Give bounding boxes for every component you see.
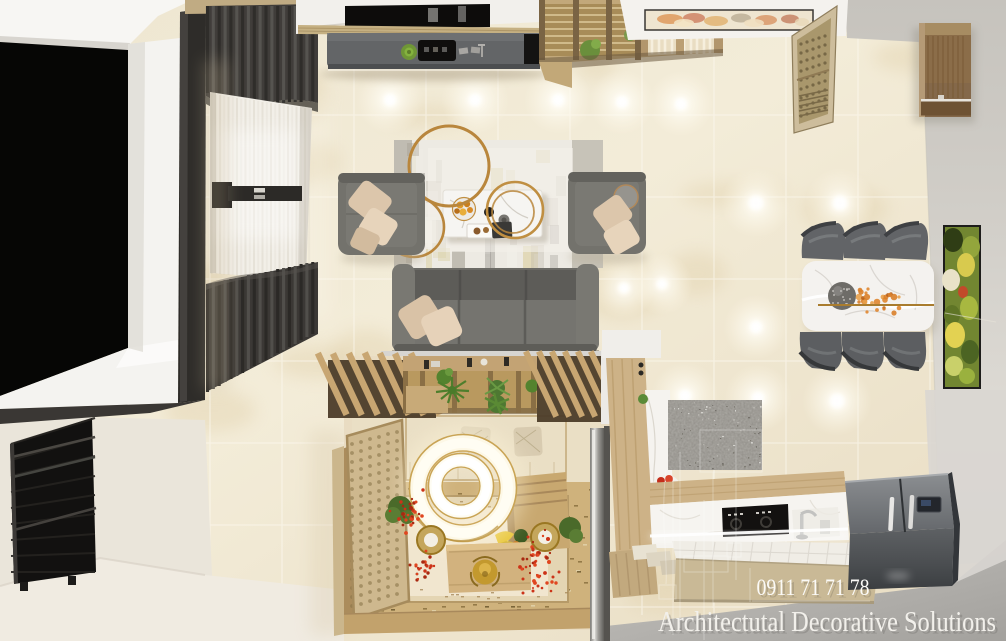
svg-text:0911 71 71 78: 0911 71 71 78 — [757, 575, 870, 600]
svg-text:Architectutal Decorative Solut: Architectutal Decorative Solutions — [658, 606, 996, 638]
